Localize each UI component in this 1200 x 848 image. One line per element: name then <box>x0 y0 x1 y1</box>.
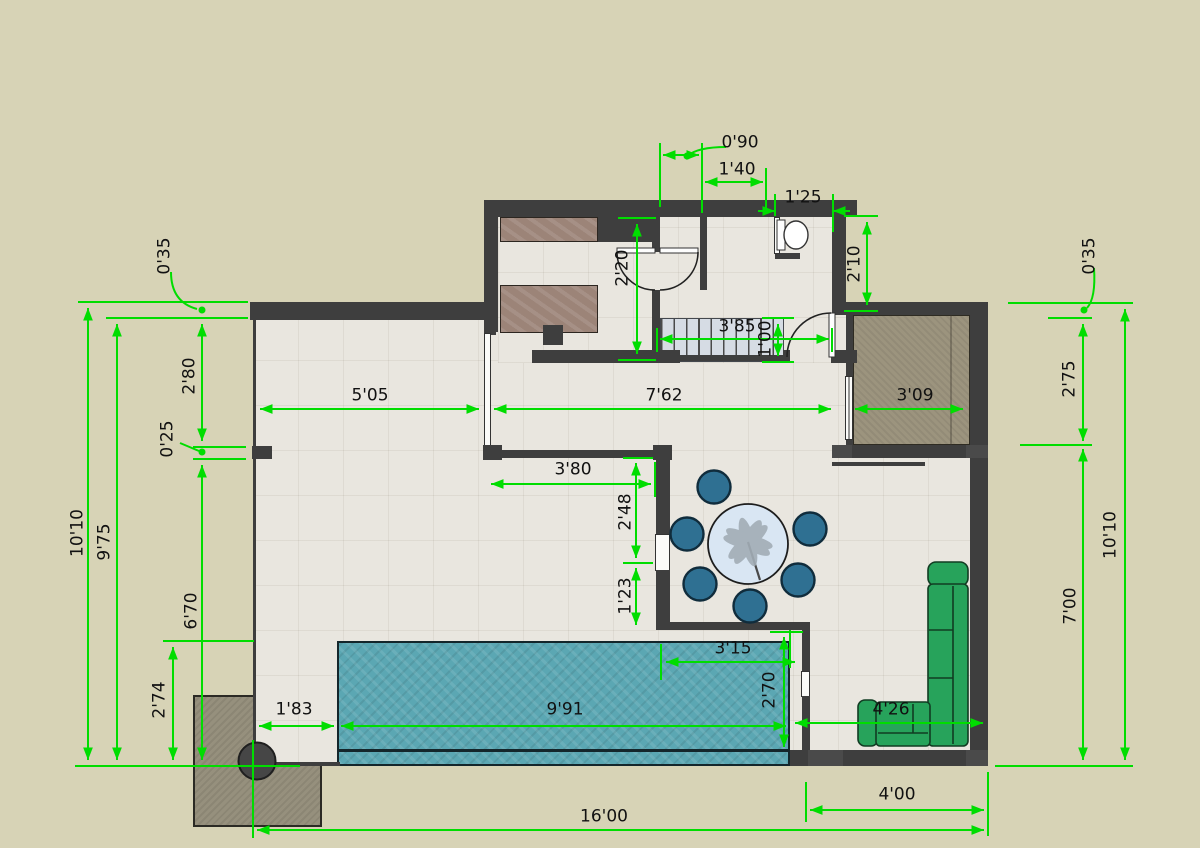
terrace-edge-left <box>253 318 256 766</box>
porch-floor <box>853 315 970 445</box>
appliance-block <box>598 217 652 242</box>
floor-plan: 0'90 1'40 1'25 2'20 2'10 3'85 1'00 5'05 … <box>0 0 1200 848</box>
dining-wall-bottom <box>658 622 810 630</box>
dim-label-1-23: 1'23 <box>618 577 635 614</box>
porch-edge-line <box>950 315 952 445</box>
dim-label-1-40: 1'40 <box>718 162 755 179</box>
dim-label-4-26: 4'26 <box>872 702 909 719</box>
pool-wall-window <box>801 671 810 697</box>
dim-label-7-00: 7'00 <box>1063 587 1080 624</box>
dim-label-4-00: 4'00 <box>878 787 915 804</box>
wall-porch-bottom-post-left <box>832 445 852 458</box>
wall-right <box>970 315 988 766</box>
bath-glass-partition <box>774 217 780 254</box>
wall-block-bottom-right <box>831 350 857 363</box>
wall-bottom-post-left <box>808 750 843 766</box>
dim-label-1-00: 1'00 <box>758 320 775 357</box>
dim-label-3-09: 3'09 <box>896 388 933 405</box>
pool-wall-upper <box>802 622 810 672</box>
dim-label-1-83: 1'83 <box>275 702 312 719</box>
dining-wall-corner <box>653 445 672 460</box>
pool-step <box>339 749 788 764</box>
dim-label-0-25: 0'25 <box>160 420 177 457</box>
dim-label-9-91: 9'91 <box>546 702 583 719</box>
pool-wall-lower <box>802 696 810 752</box>
dim-label-9-75: 9'75 <box>97 523 114 560</box>
dim-label-3-15: 3'15 <box>714 641 751 658</box>
wall-porch-left-top <box>846 315 853 376</box>
wall-block-bottom-left <box>532 350 680 363</box>
dim-label-10-10-right: 10'10 <box>1103 511 1120 559</box>
dim-label-0-35-right: 0'35 <box>1082 237 1099 274</box>
terrace-edge-bottom <box>253 762 340 766</box>
wall-3-80 <box>502 450 655 458</box>
dim-label-1-25: 1'25 <box>784 190 821 207</box>
wall-kitchen-divider-top <box>652 217 660 252</box>
wall-main-top-right <box>846 302 988 315</box>
dim-label-0-35-left: 0'35 <box>157 237 174 274</box>
dim-label-2-70: 2'70 <box>762 671 779 708</box>
wall-porch-bottom-post-right <box>966 445 988 458</box>
kitchen-counter <box>500 217 598 242</box>
wall-block-bottom-stub <box>783 350 790 363</box>
wall-bottom-post-right <box>966 750 988 766</box>
wall-main-top-left <box>250 302 490 320</box>
foyer-glass-wall <box>484 333 491 446</box>
dining-window <box>655 534 670 571</box>
left-wall-pilaster <box>252 446 272 459</box>
kitchen-column-block <box>543 325 563 345</box>
wall-porch-bottom <box>832 445 988 458</box>
dim-label-3-85: 3'85 <box>718 319 755 336</box>
dining-wall-left-lower <box>656 570 670 630</box>
wall-closet-right <box>700 217 707 290</box>
dim-label-2-10: 2'10 <box>847 245 864 282</box>
foyer-wall-corner <box>483 445 502 460</box>
dim-label-2-48: 2'48 <box>618 493 635 530</box>
dim-label-7-62: 7'62 <box>645 388 682 405</box>
dining-wall-left-upper <box>656 460 670 536</box>
dim-label-2-20: 2'20 <box>615 249 632 286</box>
dim-label-6-70: 6'70 <box>184 592 201 629</box>
dim-label-3-80: 3'80 <box>554 462 591 479</box>
porch-glass-door <box>845 376 853 440</box>
dim-label-10-10-left: 10'10 <box>70 509 87 557</box>
dim-label-2-74: 2'74 <box>152 681 169 718</box>
dim-label-5-05: 5'05 <box>351 388 388 405</box>
dim-label-2-75: 2'75 <box>1062 360 1079 397</box>
wall-kitchen-divider-bottom <box>652 290 660 352</box>
step-line <box>832 462 925 466</box>
dim-label-2-80: 2'80 <box>182 357 199 394</box>
dim-label-0-90: 0'90 <box>721 135 758 152</box>
dim-label-16-00: 16'00 <box>580 809 628 826</box>
